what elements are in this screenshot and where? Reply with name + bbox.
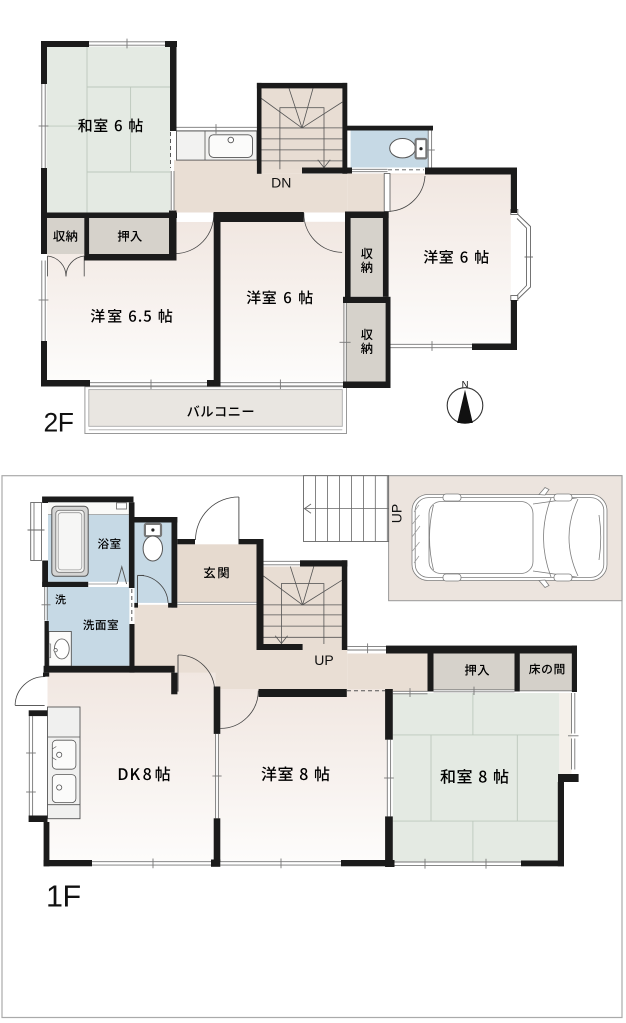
svg-text:2F: 2F (44, 407, 74, 437)
svg-text:DN: DN (271, 174, 291, 190)
svg-text:UP: UP (389, 504, 405, 523)
svg-text:1F: 1F (46, 880, 81, 914)
svg-text:N: N (462, 380, 469, 391)
svg-text:UP: UP (314, 652, 333, 668)
